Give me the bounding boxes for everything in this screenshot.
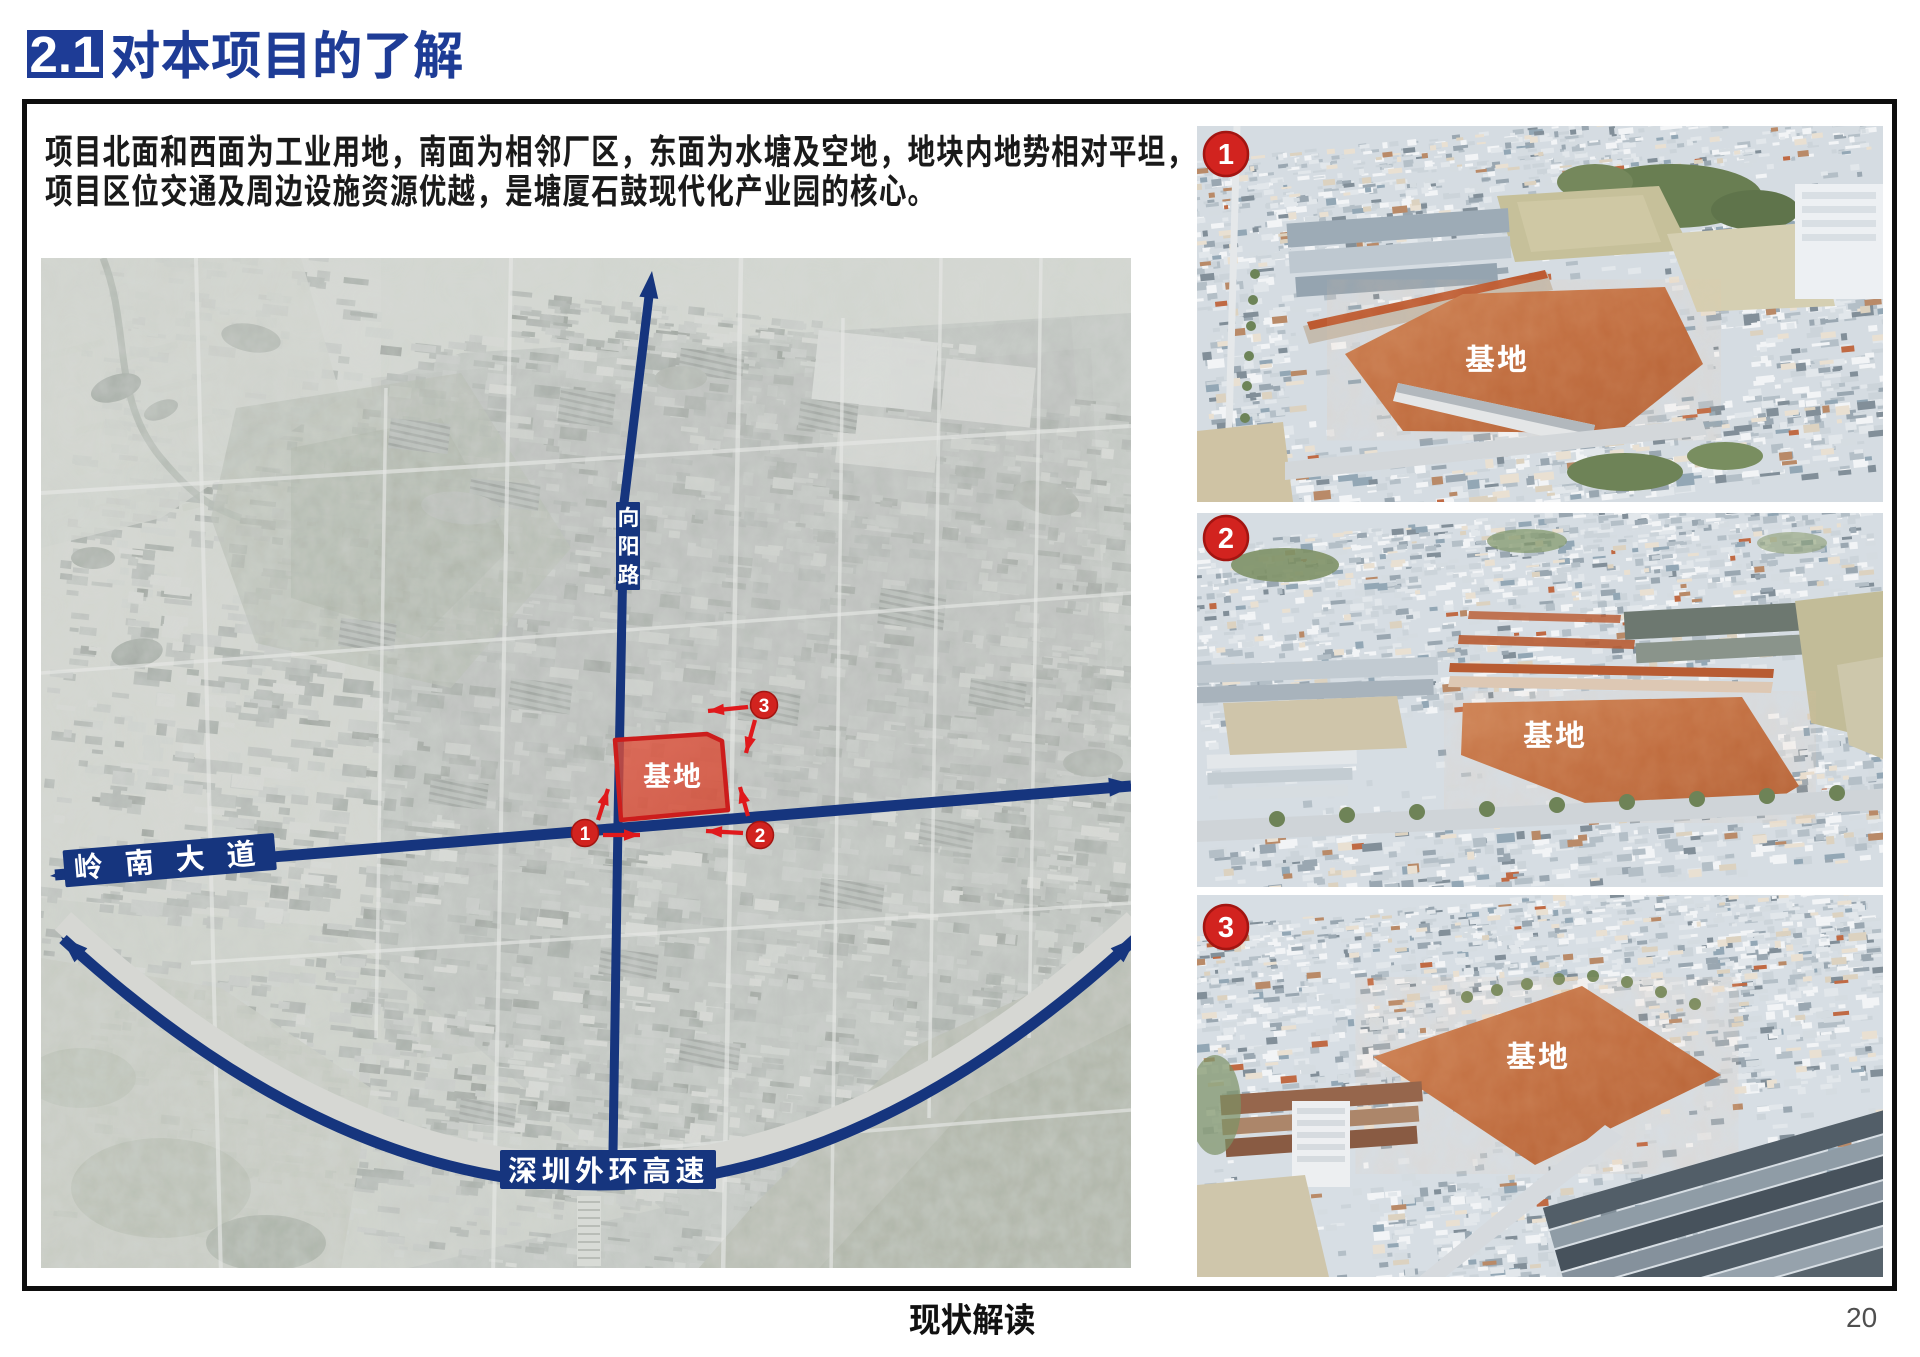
svg-text:2: 2	[1218, 523, 1234, 555]
svg-text:3: 3	[1218, 912, 1234, 944]
svg-text:1: 1	[580, 824, 591, 845]
svg-text:2: 2	[755, 826, 766, 847]
svg-text:3: 3	[759, 696, 770, 717]
svg-text:1: 1	[1218, 139, 1234, 171]
